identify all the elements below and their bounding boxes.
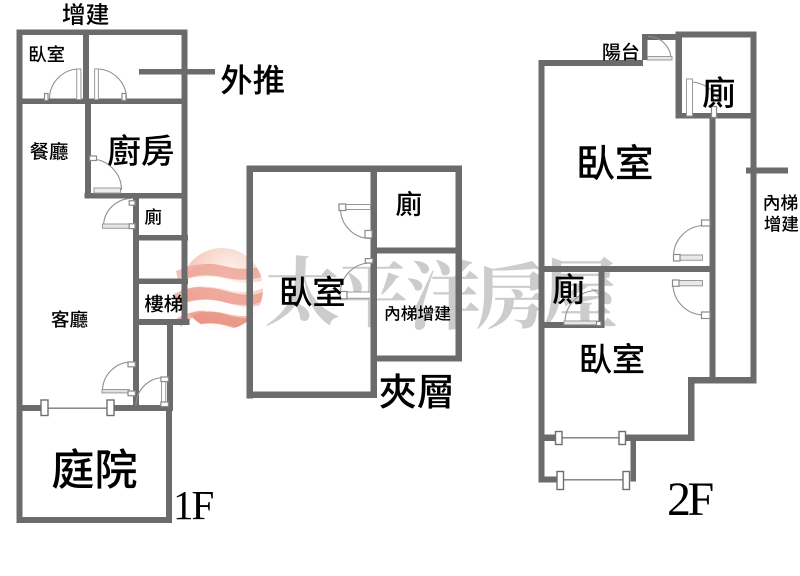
svg-text:2F: 2F — [667, 473, 713, 526]
svg-text:1F: 1F — [173, 482, 214, 528]
